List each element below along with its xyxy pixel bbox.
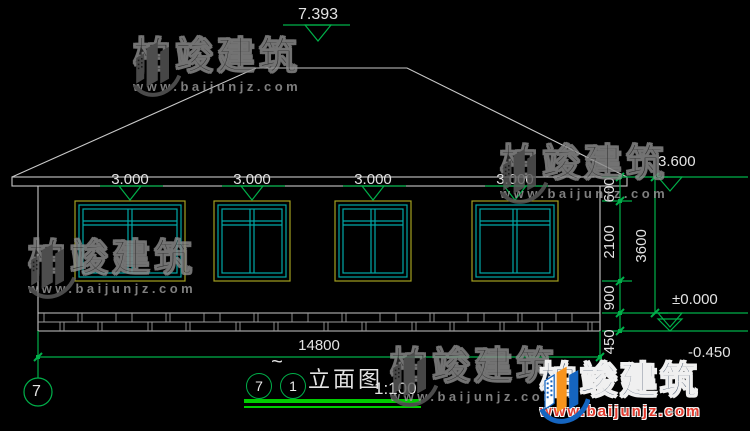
eave-level-text-2: 3.000 [222,172,282,188]
baijun-logo-icon [390,348,438,412]
title-axis-from-bubble: 7 [246,373,272,399]
brand-logo-color: 柏竣建筑 www.baijunjz.com [540,362,701,419]
baijun-logo-color-icon [540,362,590,428]
window-2 [214,201,290,281]
dim-3600-text: 3600 [634,216,650,276]
dim-2100-text: 2100 [602,212,618,272]
axis-bubble-label: 7 [32,384,41,401]
baijun-logo-icon [133,38,181,102]
title-axis-to-label: 1 [289,378,297,394]
baijun-logo-icon [28,240,76,304]
watermark-wall: 柏竣建筑 www.baijunjz.com [28,240,196,295]
baijun-logo-icon [500,145,548,209]
zero-level-text: ±0.000 [672,292,718,308]
title-tilde: ~ [262,352,292,373]
watermark-roof: 柏竣建筑 www.baijunjz.com [133,38,301,93]
eave-level-markers [100,186,548,200]
window-4 [472,201,558,281]
title-axis-to-bubble: 1 [280,373,306,399]
drawing-title: 立面图 [308,368,383,391]
ridge-level-text: 7.393 [283,7,353,24]
window-3 [335,201,411,281]
ground-level-text: -0.450 [688,345,731,361]
watermark-bottom: 柏竣建筑 www.baijunjz.com [390,348,558,403]
title-axis-from-label: 7 [255,378,263,394]
watermark-right: 柏竣建筑 www.baijunjz.com [500,145,668,200]
eave-level-text-1: 3.000 [100,172,160,188]
eave-level-text-3: 3.000 [343,172,403,188]
elevation-drawing-canvas: 7.393 3.000 3.000 3.000 3.000 3.600 ±0.0… [0,0,750,431]
plinth-stone-band [38,313,600,331]
